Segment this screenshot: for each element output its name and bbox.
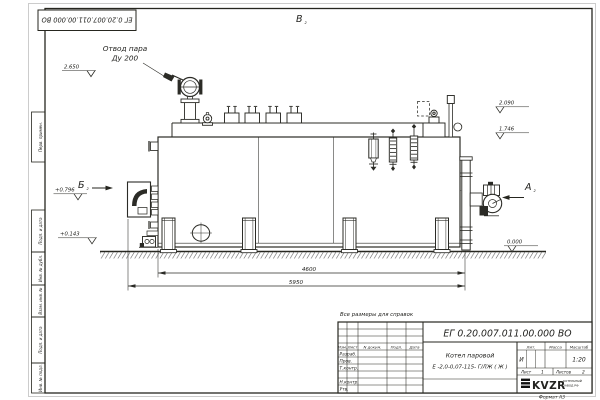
view-left-label: Б xyxy=(78,180,85,191)
col-izm: Изм. xyxy=(338,344,347,349)
top-stamp: ЕГ 0.20.007.011.00.000 ВО xyxy=(38,10,136,31)
scale-label: Масштаб xyxy=(570,344,589,349)
lit-value: И xyxy=(519,357,524,364)
row-prov: Пров. xyxy=(340,359,353,365)
top-stamp-number: ЕГ 0.20.007.011.00.000 ВО xyxy=(42,16,133,24)
margin-label: Инв. № подл. xyxy=(38,364,43,392)
engineering-drawing: Перв. примен. Подп. и дата Инв. № дубл. … xyxy=(0,0,600,400)
fan-inlet xyxy=(480,206,489,216)
logo-sub2: ЗАВОД РФ xyxy=(563,383,579,387)
product-name: Котел паровой xyxy=(446,353,495,360)
doc-number: ЕГ 0.20.007.011.00.000 ВО xyxy=(443,329,571,340)
mass-label: Масса xyxy=(549,344,562,349)
row-nkontr: Н.контр. xyxy=(340,380,359,386)
view-top-label: В xyxy=(296,14,303,25)
lit-label: Лит. xyxy=(526,344,536,349)
logo-sub1: КОТЕЛЬНЫЙ xyxy=(563,378,582,383)
row-tkontr: Т.контр. xyxy=(340,366,359,372)
leg xyxy=(241,218,257,253)
steam-label-line2: Ду 200 xyxy=(111,54,139,63)
col-list: Лист xyxy=(347,344,359,349)
dim-4600: 4600 xyxy=(302,267,317,273)
product-model: Е -2,0-0,07-115- Г/ЛЖ ( Ж ) xyxy=(432,365,507,371)
margin-label: Подп. и дата xyxy=(38,326,43,354)
format-label: Формат А3 xyxy=(539,395,565,400)
col-data: Дата xyxy=(408,344,420,349)
sheets-value: 2 xyxy=(582,369,585,375)
leg xyxy=(434,218,450,253)
row-utv: Утв. xyxy=(340,387,349,393)
sheets-label: Листов xyxy=(555,369,572,374)
margin-label: Перв. примен. xyxy=(38,122,43,152)
sheet-value: 1 xyxy=(541,369,544,375)
svg-text:1.746: 1.746 xyxy=(499,127,515,133)
fan-duct xyxy=(470,193,482,206)
col-doc: N докум. xyxy=(363,344,381,349)
svg-text:+0.796: +0.796 xyxy=(55,188,75,194)
leg xyxy=(342,218,358,253)
col-podp: Подп. xyxy=(391,344,403,349)
margin-label: Инв. № дубл. xyxy=(38,255,43,282)
svg-text:2.650: 2.650 xyxy=(64,65,80,71)
svg-text:2.090: 2.090 xyxy=(499,101,515,107)
margin-label: Подп. и дата xyxy=(38,217,43,245)
reference-note: Все размеры для справок xyxy=(340,312,414,318)
title-block: ЕГ 0.20.007.011.00.000 ВО Котел паровой … xyxy=(338,322,592,393)
leg xyxy=(161,218,177,253)
svg-text:0.000: 0.000 xyxy=(507,240,523,246)
steam-label-line1: Отвод пара xyxy=(103,44,147,53)
drawing-sheet: Перв. примен. Подп. и дата Инв. № дубл. … xyxy=(0,0,600,400)
row-razrab: Разраб. xyxy=(340,352,357,358)
svg-text:+0.143: +0.143 xyxy=(60,232,80,238)
sheet-label: Лист xyxy=(520,369,532,374)
margin-label: Взам. инв. № xyxy=(38,287,43,314)
logo-text: KVZR xyxy=(532,380,566,392)
view-right-label: А xyxy=(524,182,532,193)
scale-value: 1:20 xyxy=(572,357,586,364)
dim-5950: 5950 xyxy=(289,280,304,286)
